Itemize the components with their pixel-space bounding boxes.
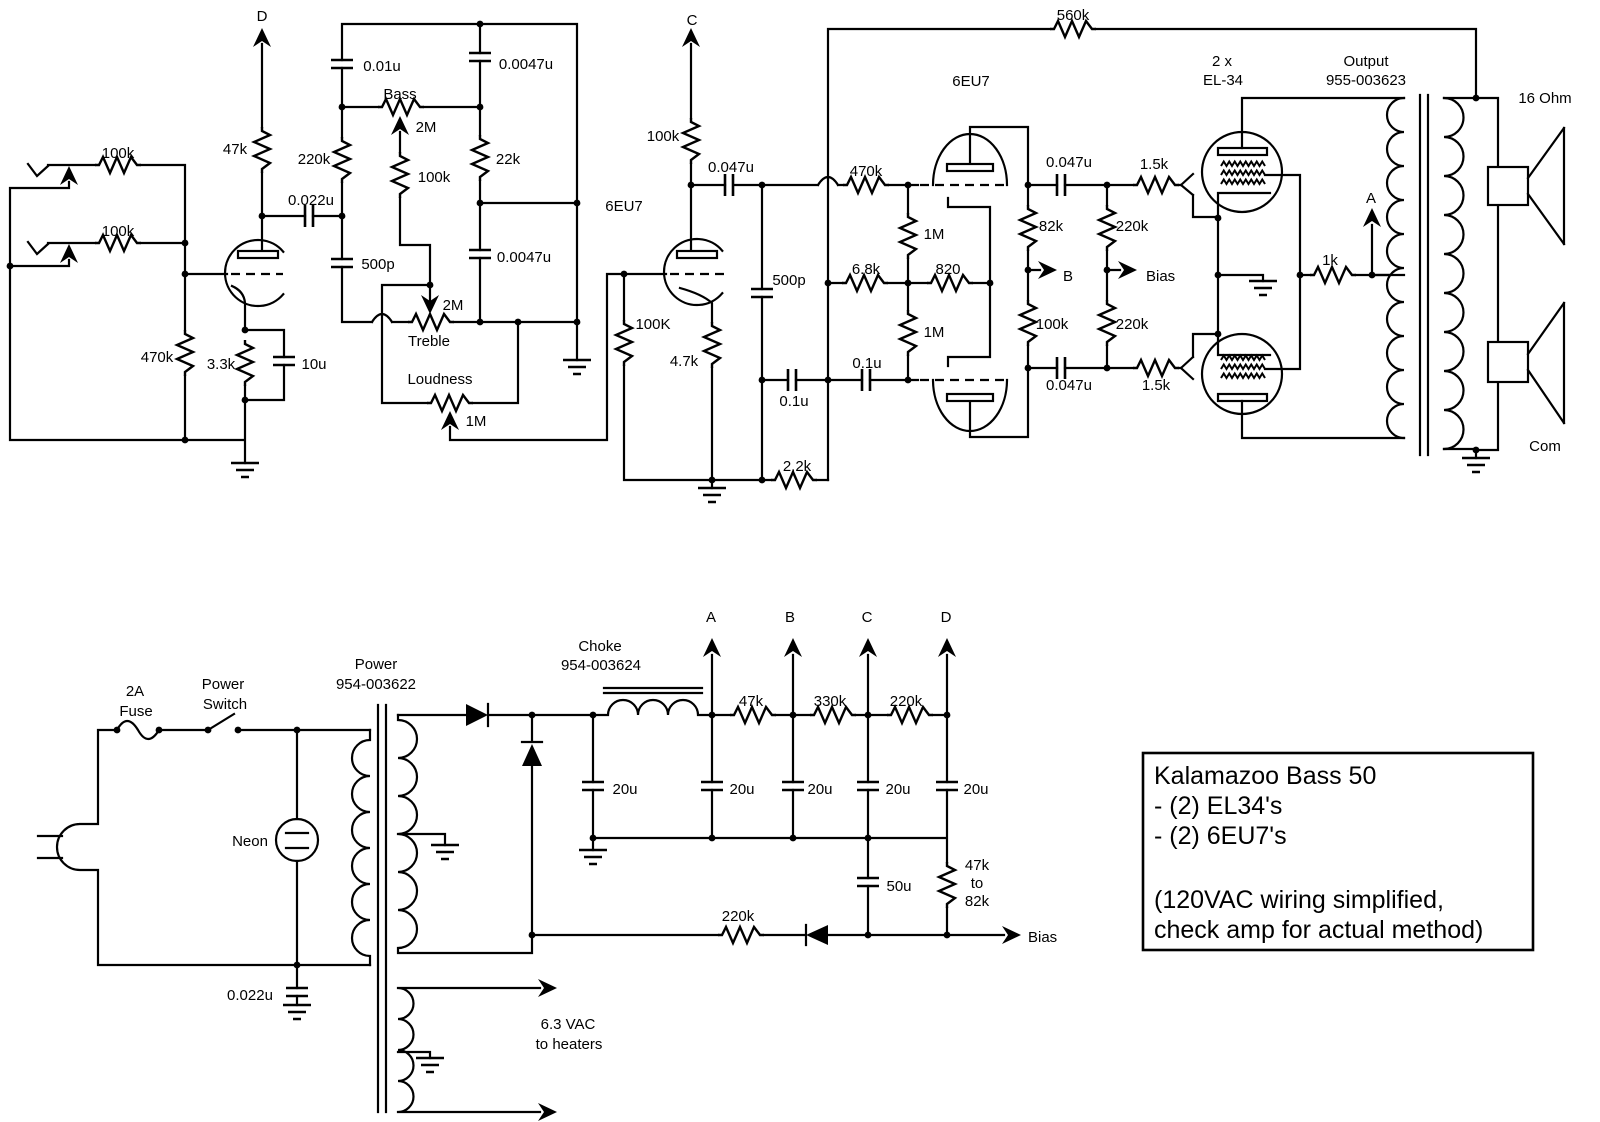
label-pi-cap-b: 0.047u xyxy=(1046,377,1092,394)
label-pi-820: 820 xyxy=(935,261,960,278)
label-tone-220k: 220k xyxy=(298,151,331,168)
label-ps-220k: 220k xyxy=(890,693,923,710)
label-pi-220k-a: 220k xyxy=(1116,218,1149,235)
label-pi-220k-b: 220k xyxy=(1116,316,1149,333)
label-feedback-r: 560k xyxy=(1057,7,1090,24)
label-mid-r: 100k xyxy=(418,169,451,186)
label-pi-cap-a: 0.047u xyxy=(1046,154,1092,171)
label-bias-r1: 47k xyxy=(965,857,990,874)
info-line3: - (2) 6EU7's xyxy=(1154,822,1287,850)
label-plate-r: 47k xyxy=(223,141,248,158)
label-pi-82k: 82k xyxy=(1039,218,1064,235)
label-grid-stop-b: 1.5k xyxy=(1142,377,1171,394)
label-switch-2: Switch xyxy=(203,696,247,713)
label-choke-name: Choke xyxy=(578,638,621,655)
info-line2: - (2) EL34's xyxy=(1154,792,1282,820)
label-input-r2: 100k xyxy=(102,223,135,240)
label-coupling-c: 0.022u xyxy=(288,192,334,209)
label-stage2-r22: 2.2k xyxy=(783,458,812,475)
label-el34-qty: 2 x xyxy=(1212,53,1233,70)
label-20u-3: 20u xyxy=(807,781,832,798)
label-pi-1m-a: 1M xyxy=(924,226,945,243)
label-ot-name: Output xyxy=(1343,53,1389,70)
label-tap-c: C xyxy=(862,609,873,626)
label-com: Com xyxy=(1529,438,1561,455)
output-transformer: Output 955-003623 xyxy=(1326,53,1490,472)
label-bias-r3: 82k xyxy=(965,893,990,910)
second-stage: 6EU7 C 100k 0.047u 100K 4.7k 500p 0.1u 0… xyxy=(605,12,908,502)
label-fuse-2: Fuse xyxy=(119,703,152,720)
label-ps-330k: 330k xyxy=(814,693,847,710)
label-grid-stop-a: 1.5k xyxy=(1140,156,1169,173)
label-22k: 22k xyxy=(496,151,521,168)
label-20u-4: 20u xyxy=(885,781,910,798)
label-bass: Bass xyxy=(383,86,416,103)
schematic-canvas: 100k 100k 470k 3.3k 10u 47k D 0.022u 0.0… xyxy=(0,0,1600,1122)
label-pt-part: 954-003622 xyxy=(336,676,416,693)
rectifier-filter: Choke 954-003624 A B C D 47k 330k 220k 2… xyxy=(398,609,1057,946)
label-treble: Treble xyxy=(408,333,450,350)
label-tone-c2: 0.0047u xyxy=(499,56,553,73)
label-heater-2: to heaters xyxy=(536,1036,603,1053)
label-pi-b: B xyxy=(1063,268,1073,285)
label-pi-1m-b: 1M xyxy=(924,324,945,341)
label-16ohm: 16 Ohm xyxy=(1518,90,1571,107)
info-box: Kalamazoo Bass 50 - (2) EL34's - (2) 6EU… xyxy=(1143,753,1533,950)
label-cathode-c: 10u xyxy=(301,356,326,373)
label-cathode-r: 3.3k xyxy=(207,356,236,373)
tone-stack: 0.01u 0.0047u Bass 2M 100k 22k 500p 0.00… xyxy=(298,21,624,440)
label-ps-47k: 47k xyxy=(739,693,764,710)
label-20u-2: 20u xyxy=(729,781,754,798)
label-pi-tube: 6EU7 xyxy=(952,73,990,90)
label-stage2-500p: 500p xyxy=(772,272,805,289)
label-500p: 500p xyxy=(361,256,394,273)
label-choke-part: 954-003624 xyxy=(561,657,641,674)
label-ot-part: 955-003623 xyxy=(1326,72,1406,89)
label-bias-out: Bias xyxy=(1028,929,1057,946)
label-20u-5: 20u xyxy=(963,781,988,798)
label-stage2-c01b: 0.1u xyxy=(852,355,881,372)
label-neon: Neon xyxy=(232,833,268,850)
label-line-cap: 0.022u xyxy=(227,987,273,1004)
label-switch-1: Power xyxy=(202,676,245,693)
info-line4: (120VAC wiring simplified, xyxy=(1154,886,1444,914)
label-bias-r2: to xyxy=(971,875,984,892)
label-tap-b: B xyxy=(785,609,795,626)
label-tone-c1: 0.01u xyxy=(363,58,401,75)
label-el34: EL-34 xyxy=(1203,72,1243,89)
input-stage: 100k 100k 470k 3.3k 10u 47k D 0.022u xyxy=(7,8,342,477)
label-heater-1: 6.3 VAC xyxy=(541,1016,596,1033)
label-stage2-cathode-r: 4.7k xyxy=(670,353,699,370)
label-supply-d: D xyxy=(257,8,268,25)
label-pi-100k: 100k xyxy=(1036,316,1069,333)
label-stage2-grid-r: 100K xyxy=(635,316,670,333)
label-tap-d: D xyxy=(941,609,952,626)
label-tone-c3: 0.0047u xyxy=(497,249,551,266)
label-a-tap: A xyxy=(1366,190,1376,207)
label-stage2-tube: 6EU7 xyxy=(605,198,643,215)
label-pi-bias: Bias xyxy=(1146,268,1175,285)
label-stage2-plate-r: 100k xyxy=(647,128,680,145)
label-stage2-c01a: 0.1u xyxy=(779,393,808,410)
label-pt-name: Power xyxy=(355,656,398,673)
power-amp: 2 x EL-34 1.5k 1.5k 1k A xyxy=(1140,53,1404,438)
label-pi-68: 6.8k xyxy=(852,261,881,278)
label-treble-pot: 2M xyxy=(443,297,464,314)
label-stage2-coupling: 0.047u xyxy=(708,159,754,176)
mains-input: 2A Fuse Power Switch Neon 0.022u xyxy=(38,676,370,1019)
label-loudness-pot: 1M xyxy=(466,413,487,430)
power-transformer: Power 954-003622 xyxy=(336,656,532,1112)
label-50u: 50u xyxy=(886,878,911,895)
speakers: 16 Ohm Com xyxy=(1476,90,1572,455)
label-loudness: Loudness xyxy=(407,371,472,388)
label-bias-feed-r: 220k xyxy=(722,908,755,925)
info-title: Kalamazoo Bass 50 xyxy=(1154,762,1376,790)
label-20u-1: 20u xyxy=(612,781,637,798)
info-line5: check amp for actual method) xyxy=(1154,916,1483,944)
label-pi-470k: 470k xyxy=(850,163,883,180)
label-screen-r: 1k xyxy=(1322,252,1338,269)
label-bass-pot: 2M xyxy=(416,119,437,136)
label-fuse-1: 2A xyxy=(126,683,144,700)
label-tap-a: A xyxy=(706,609,716,626)
label-supply-c: C xyxy=(687,12,698,29)
label-input-r1: 100k xyxy=(102,145,135,162)
label-grid-r: 470k xyxy=(141,349,174,366)
schematic-page: 100k 100k 470k 3.3k 10u 47k D 0.022u 0.0… xyxy=(0,0,1600,1122)
heater-supply: 6.3 VAC to heaters xyxy=(398,979,602,1121)
